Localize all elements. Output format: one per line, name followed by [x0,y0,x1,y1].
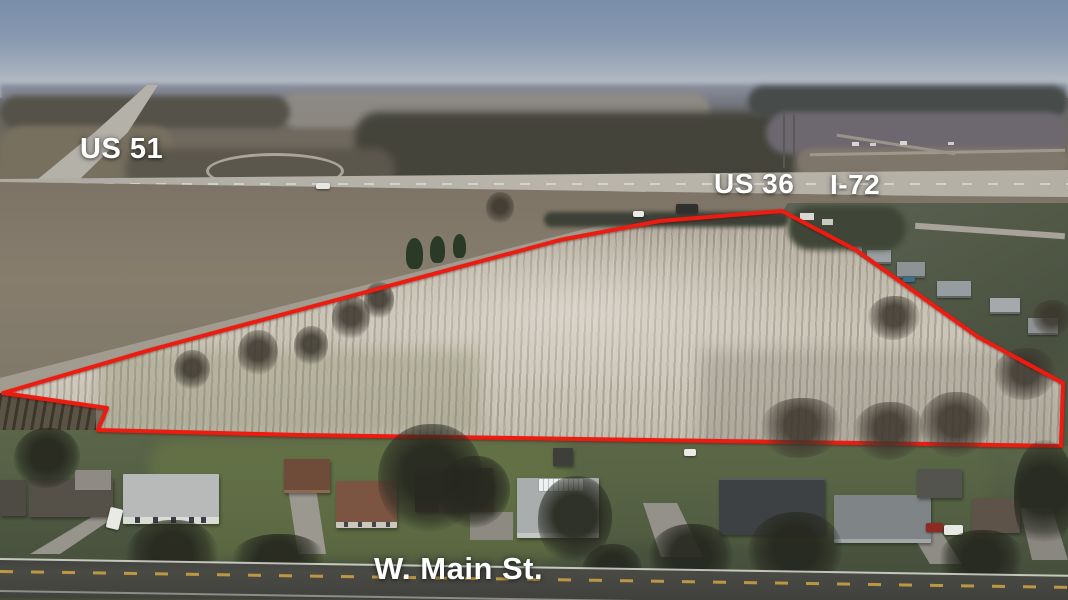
aerial-photo: US 51 US 36 I-72 W. Main St. [0,0,1068,600]
parcel-boundary-overlay [0,0,1068,600]
road-label-us51: US 51 [80,133,163,166]
road-label-us36: US 36 [714,168,794,200]
road-label-i72: I-72 [830,169,880,201]
road-label-main-st: W. Main St. [374,551,543,587]
tree [1014,440,1068,552]
